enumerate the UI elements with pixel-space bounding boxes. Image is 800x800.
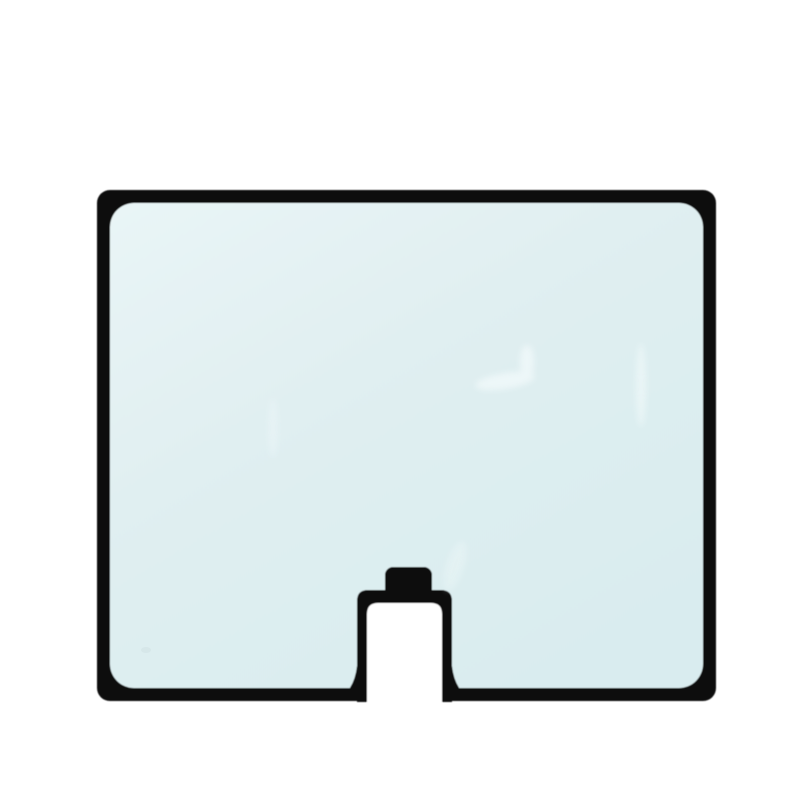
- glass-panel-illustration: [0, 0, 800, 800]
- glass-smudge: [141, 647, 151, 653]
- notch-cutout-channel: [367, 603, 442, 712]
- mounting-tab: [385, 567, 432, 597]
- product-photo: [0, 0, 800, 800]
- glass-reflection-streak: [520, 345, 534, 379]
- glass-reflection-streak: [636, 343, 646, 427]
- glass-reflection-streak: [268, 398, 278, 458]
